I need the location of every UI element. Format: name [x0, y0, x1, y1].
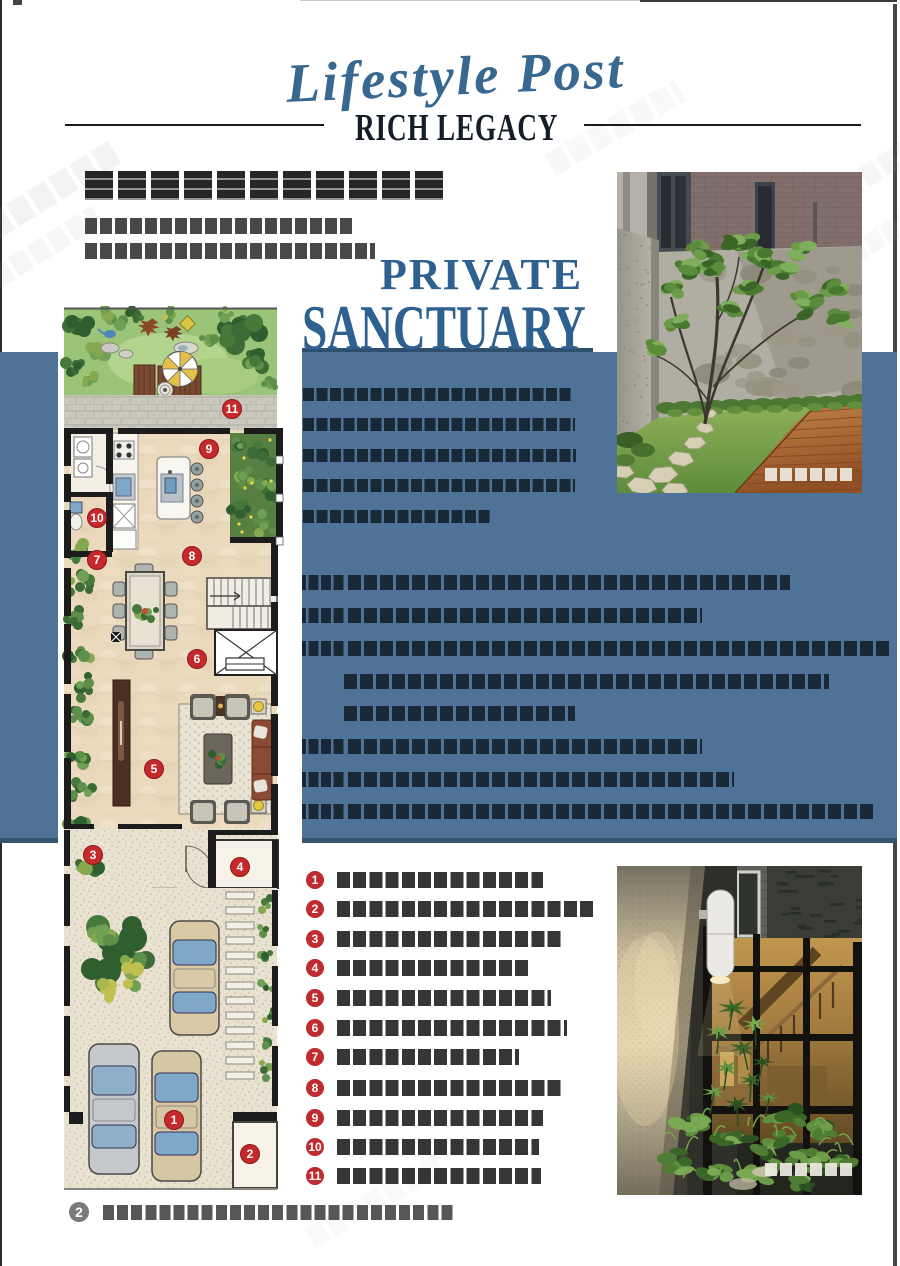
svg-text:8: 8: [189, 549, 196, 563]
svg-text:2: 2: [247, 1147, 254, 1161]
svg-text:5: 5: [151, 762, 158, 776]
svg-text:9: 9: [206, 442, 213, 456]
svg-text:3: 3: [90, 848, 97, 862]
svg-text:11: 11: [226, 402, 239, 416]
svg-text:6: 6: [194, 652, 201, 666]
svg-text:4: 4: [237, 860, 244, 874]
svg-text:10: 10: [90, 511, 104, 525]
svg-text:7: 7: [94, 553, 101, 567]
svg-text:1: 1: [171, 1113, 178, 1127]
